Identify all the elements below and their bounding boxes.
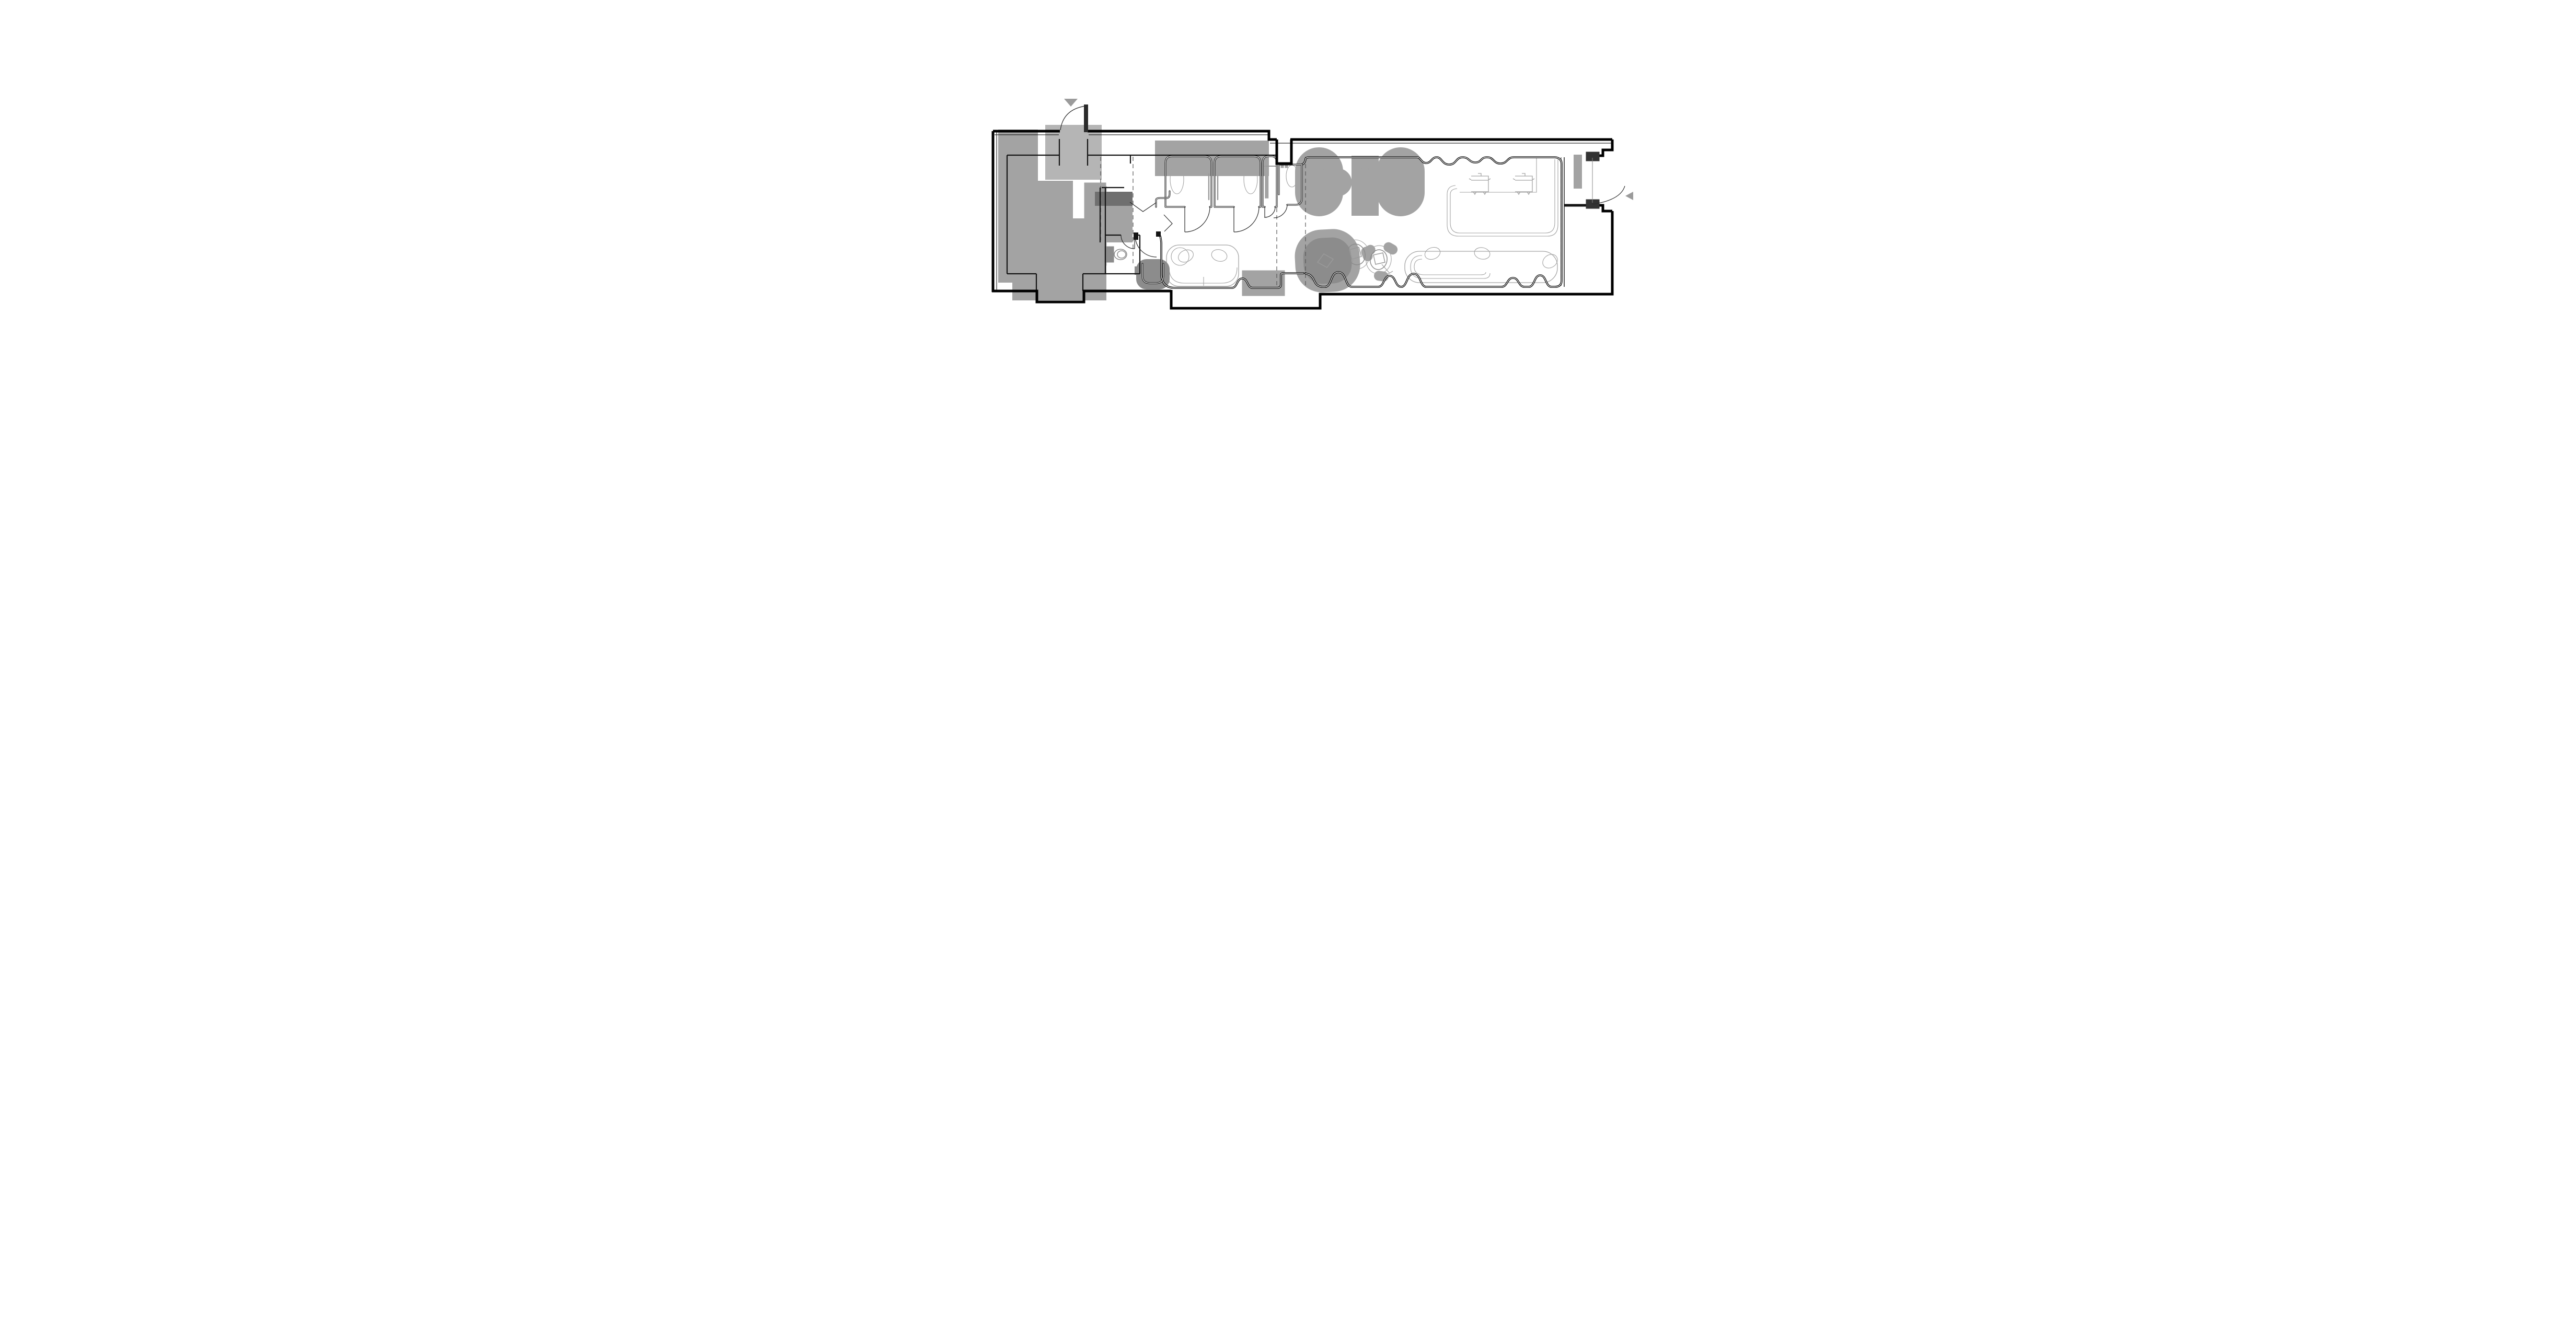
cabin3-mirror-panel — [1266, 169, 1268, 197]
shower-hook — [1281, 165, 1283, 167]
exterior-bottom-terrace — [1171, 211, 1612, 308]
wc-jamb-block — [1134, 232, 1138, 240]
station-b-chair-seat — [1372, 179, 1379, 186]
counter-chair-1 — [1469, 173, 1491, 194]
layer-markers — [1064, 99, 1633, 240]
corridor-wall-corner-core — [1156, 191, 1170, 207]
sink-unit-cabinet — [1104, 215, 1123, 233]
sofa-outline — [1166, 245, 1239, 286]
cabin2-shelf — [1220, 157, 1253, 160]
exterior-top-wall-mid — [1088, 131, 1277, 139]
cabin-hook — [1207, 166, 1209, 167]
bench-outline — [1405, 251, 1557, 283]
mirror-tick — [1360, 177, 1362, 180]
cabin-hook — [1216, 168, 1218, 169]
counter-c-outer — [1447, 159, 1558, 236]
floor-plan-svg — [879, 0, 1698, 426]
swing-chevron-b — [1164, 215, 1172, 231]
entry-door-leaf-top — [1085, 106, 1087, 131]
cabin1-door-swing — [1185, 207, 1210, 232]
counter-chair-2 — [1513, 173, 1534, 194]
sofa-seat-line — [1169, 267, 1237, 283]
entry-arrow-right — [1625, 192, 1633, 200]
lounge-jamb-block — [1156, 231, 1161, 237]
bench-pillow — [1423, 246, 1442, 262]
bench-inner-band2 — [1414, 259, 1486, 275]
entry-glass-frame-top — [1589, 155, 1596, 158]
cabin-hook — [1216, 173, 1218, 174]
cabin2-door-swing — [1234, 207, 1259, 232]
pod-tool — [1377, 274, 1385, 278]
cabin3-door-swing — [1265, 207, 1275, 217]
corridor-wall-corner — [1156, 191, 1170, 207]
wc-toilet-tank — [1107, 249, 1112, 260]
station-a-chair-seat — [1334, 179, 1341, 186]
sofa-back-circle — [1171, 248, 1189, 265]
entry-arrow-top — [1064, 99, 1078, 107]
wc-toilet-seat — [1117, 251, 1126, 258]
swing-chevron-a — [1130, 202, 1156, 212]
atelier-counter-bay — [1036, 242, 1083, 277]
cabin1-shelf — [1171, 157, 1204, 160]
sofa-pillow — [1210, 248, 1228, 263]
bench-pillow — [1473, 246, 1491, 261]
shower-hook — [1286, 165, 1287, 167]
corridor-mat — [1253, 281, 1274, 285]
sofa-pillow — [1176, 248, 1195, 265]
pod3-cushion — [1373, 253, 1385, 264]
mirror-tick — [1360, 172, 1362, 175]
cabin-hook — [1207, 171, 1209, 172]
floor-plan-canvas — [879, 0, 1698, 426]
pod-tool — [1364, 248, 1372, 254]
pod-tool — [1387, 246, 1394, 251]
lounge-door-swing — [1135, 236, 1157, 257]
counter-c-mid — [1450, 159, 1555, 233]
